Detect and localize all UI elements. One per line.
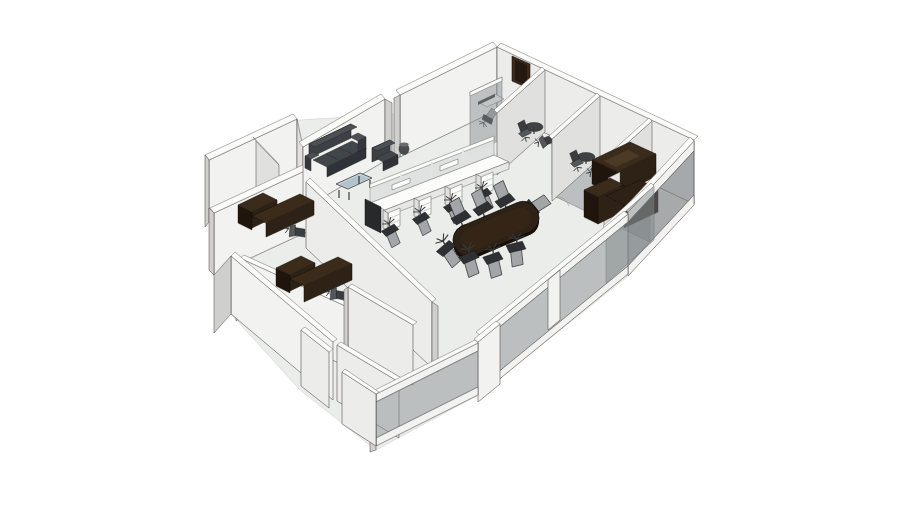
glass-mullion	[548, 270, 560, 330]
office-model-canvas[interactable]	[0, 0, 910, 512]
model-viewport[interactable]	[0, 0, 910, 512]
waste-bin	[399, 143, 409, 155]
